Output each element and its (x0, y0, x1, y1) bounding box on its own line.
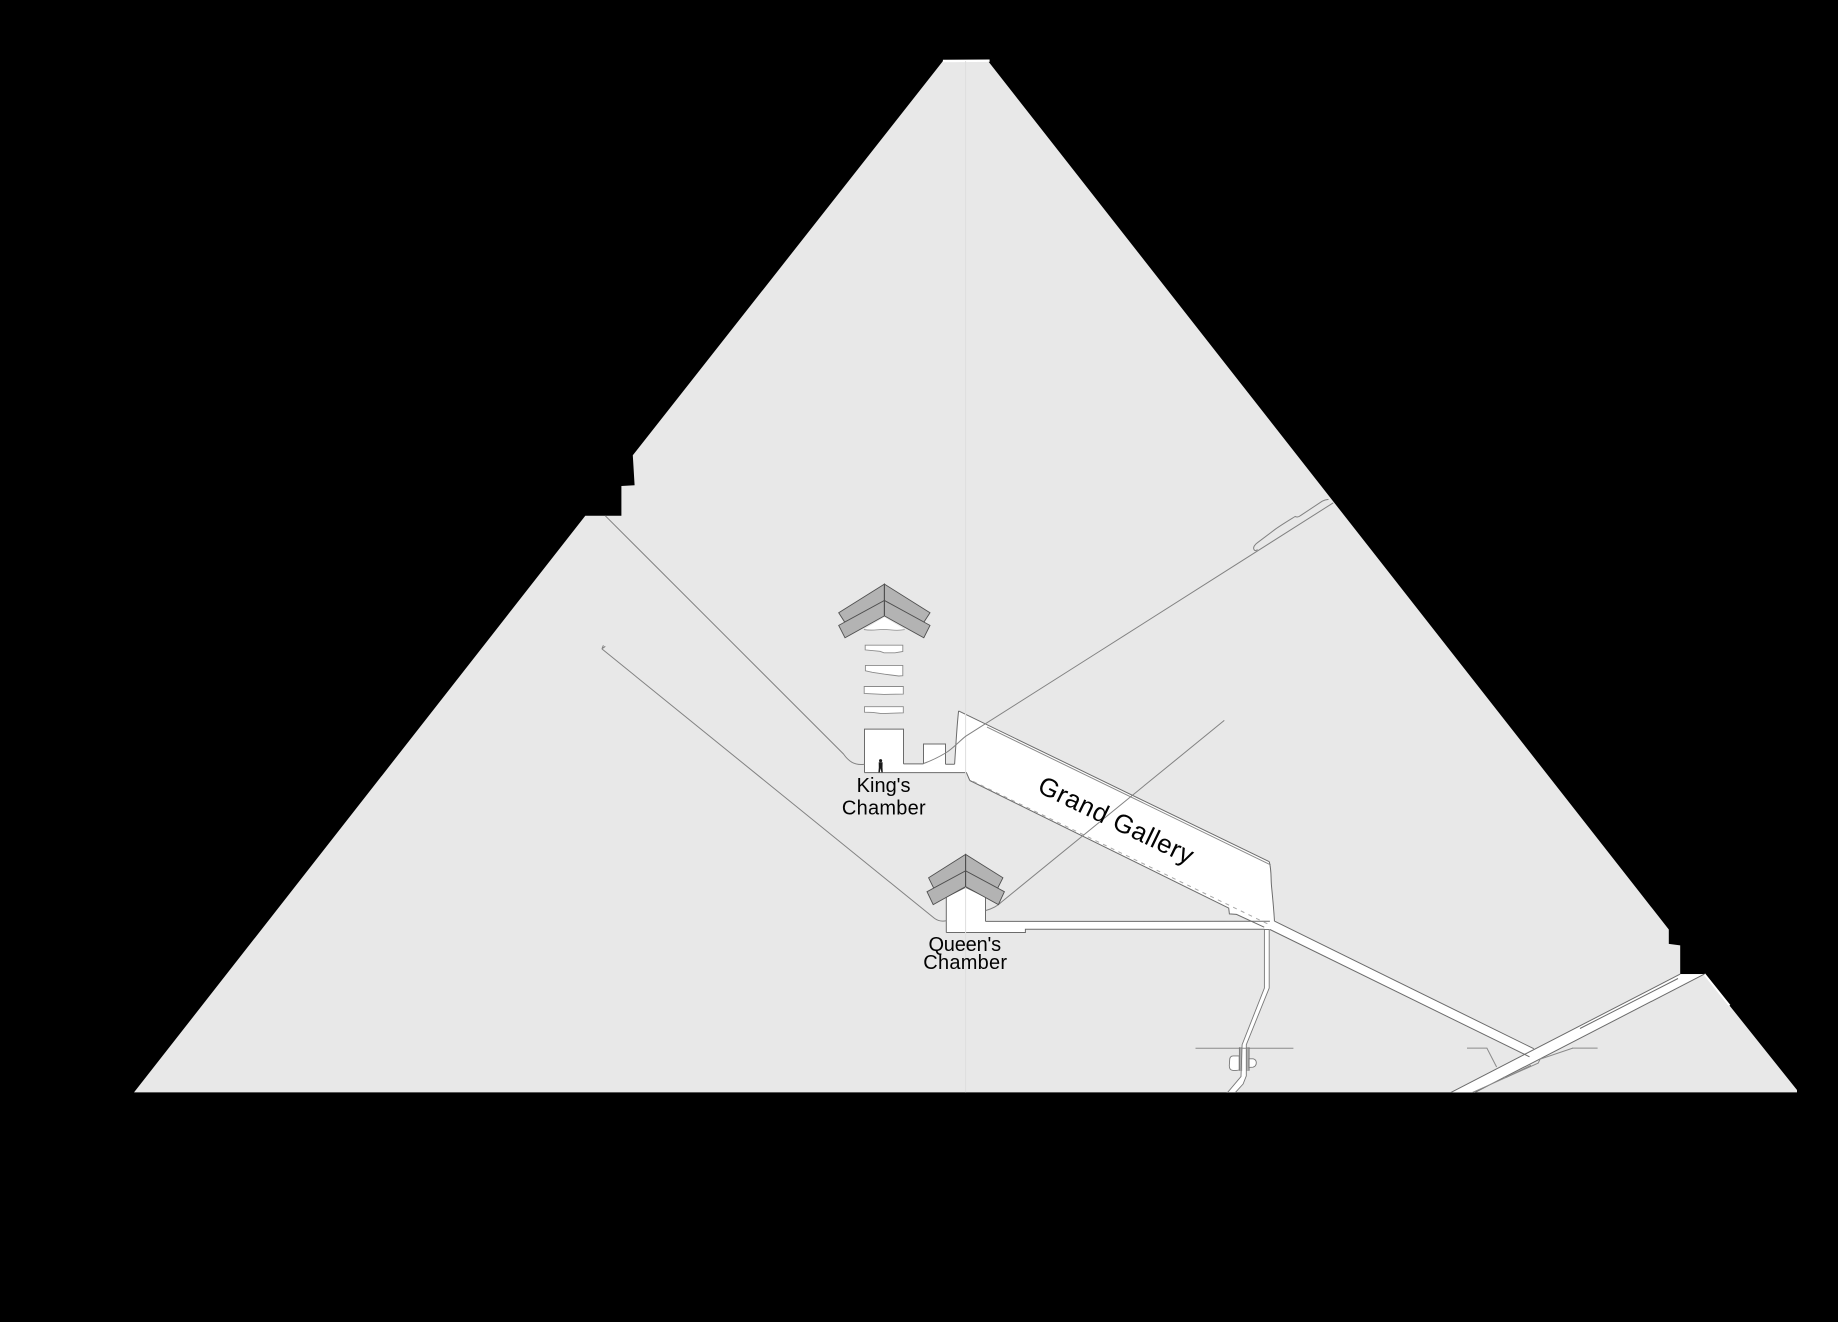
svg-text:Chamber: Chamber (842, 798, 926, 820)
svg-text:Chamber: Chamber (923, 952, 1007, 974)
svg-text:King's: King's (857, 775, 911, 797)
